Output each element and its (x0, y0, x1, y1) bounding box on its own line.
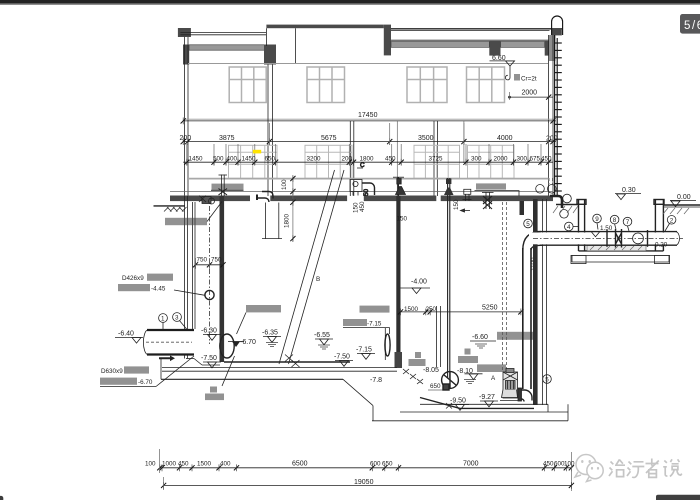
svg-text:650: 650 (430, 383, 441, 390)
svg-text:5: 5 (545, 377, 549, 384)
svg-text:5675: 5675 (321, 135, 337, 142)
svg-text:2: 2 (670, 217, 674, 224)
svg-text:400: 400 (227, 155, 238, 162)
svg-text:Cr=2t: Cr=2t (521, 75, 537, 82)
svg-text:-4.45: -4.45 (151, 286, 166, 293)
svg-text:-6.60: -6.60 (472, 334, 488, 341)
svg-text:9: 9 (595, 216, 599, 223)
svg-text:B: B (316, 276, 320, 283)
svg-text:17450: 17450 (358, 112, 378, 119)
svg-text:-6.30: -6.30 (201, 328, 217, 335)
svg-text:150: 150 (397, 216, 408, 223)
svg-text:-4.00: -4.00 (411, 279, 427, 286)
svg-text:-6.40: -6.40 (118, 331, 134, 338)
svg-text:4000: 4000 (497, 135, 513, 142)
svg-text:3725: 3725 (429, 155, 444, 162)
svg-text:0.20: 0.20 (655, 241, 668, 248)
svg-text:3875: 3875 (219, 135, 235, 142)
svg-text:675: 675 (530, 155, 541, 162)
svg-text:-6.35: -6.35 (262, 330, 278, 337)
svg-text:-9.27: -9.27 (479, 394, 495, 401)
svg-text:7000: 7000 (463, 460, 479, 467)
svg-text:150: 150 (453, 199, 460, 210)
svg-text:-6.55: -6.55 (314, 332, 330, 339)
svg-text:2000: 2000 (522, 89, 538, 96)
svg-text:200: 200 (180, 135, 192, 142)
svg-text:6500: 6500 (292, 460, 308, 467)
svg-text:1800: 1800 (284, 213, 291, 228)
svg-text:-7.50: -7.50 (201, 355, 217, 362)
svg-text:3500: 3500 (418, 135, 434, 142)
svg-text:-7.8: -7.8 (370, 377, 382, 384)
svg-text:450: 450 (385, 155, 396, 162)
svg-text:100: 100 (281, 179, 288, 190)
svg-text:2000: 2000 (494, 155, 509, 162)
svg-text:600: 600 (370, 460, 381, 467)
svg-text:5: 5 (526, 221, 530, 228)
svg-text:D630x9: D630x9 (101, 368, 123, 375)
svg-text:3: 3 (175, 315, 179, 322)
svg-text:1.50: 1.50 (600, 225, 613, 232)
svg-text:19050: 19050 (354, 479, 374, 486)
svg-text:-8.05: -8.05 (423, 367, 439, 374)
svg-text:1450: 1450 (189, 155, 204, 162)
svg-text:5/6: 5/6 (684, 20, 700, 32)
svg-text:0.00: 0.00 (677, 194, 691, 201)
svg-text:650: 650 (382, 460, 393, 467)
svg-text:400: 400 (220, 460, 231, 467)
svg-text:D426x9: D426x9 (122, 275, 144, 282)
svg-text:-6.70: -6.70 (138, 379, 153, 386)
svg-text:4: 4 (567, 224, 571, 231)
svg-text:300: 300 (471, 155, 482, 162)
svg-text:5250: 5250 (482, 304, 498, 311)
svg-text:8: 8 (613, 217, 617, 224)
svg-text:650: 650 (265, 155, 276, 162)
svg-text:50: 50 (363, 188, 370, 196)
svg-text:-7.15: -7.15 (367, 321, 382, 328)
svg-text:-9.50: -9.50 (450, 398, 466, 405)
svg-text:-6.70: -6.70 (240, 339, 256, 346)
svg-text:-7.50: -7.50 (334, 354, 350, 361)
svg-text:1500: 1500 (197, 460, 212, 467)
svg-text:100: 100 (145, 460, 156, 467)
svg-text:7: 7 (626, 219, 630, 226)
svg-text:1450: 1450 (242, 155, 257, 162)
svg-text:450: 450 (359, 201, 366, 212)
svg-text:750: 750 (211, 257, 222, 264)
svg-text:300: 300 (517, 155, 528, 162)
svg-text:450: 450 (541, 155, 552, 162)
svg-text:-7.15: -7.15 (356, 347, 372, 354)
svg-text:1: 1 (161, 316, 165, 323)
svg-text:3200: 3200 (307, 155, 322, 162)
svg-text:0.30: 0.30 (622, 187, 636, 194)
